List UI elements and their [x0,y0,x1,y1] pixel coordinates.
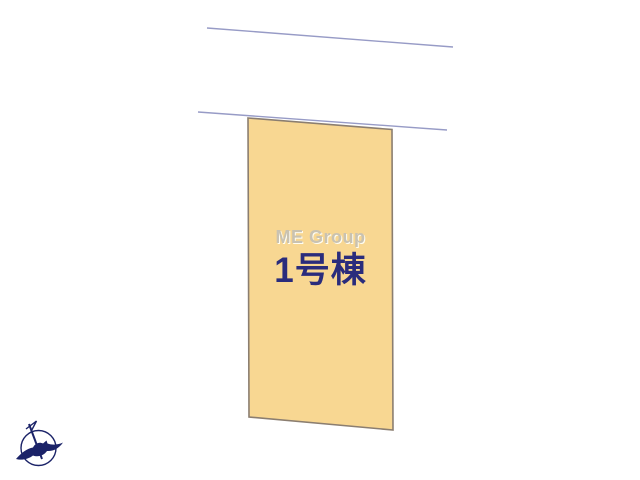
compass-north-icon [16,421,63,466]
lot-parcel-polygon [248,118,393,430]
road-edge-line-top [207,28,453,47]
site-plan-canvas: ME Group 1号棟 [0,0,640,480]
site-plan-drawing [0,0,640,480]
compass-needle-tip [26,421,37,432]
